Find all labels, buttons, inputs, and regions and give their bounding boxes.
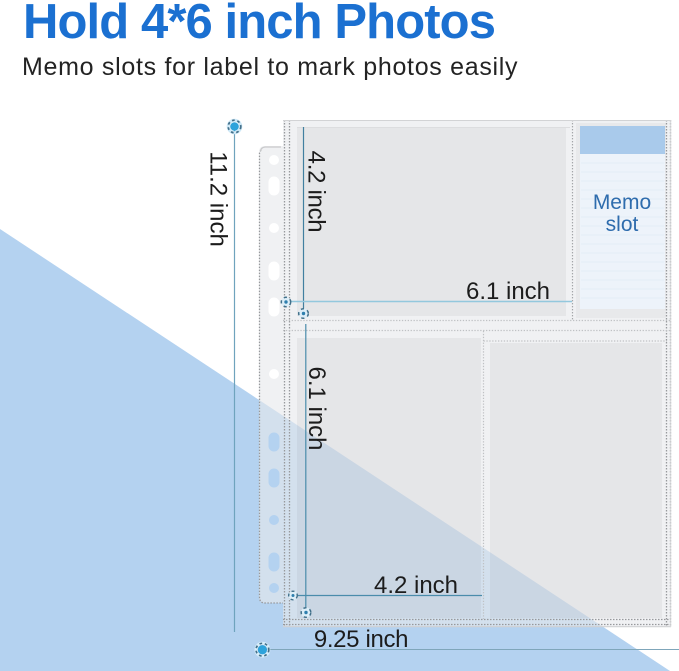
svg-text:6.1 inch: 6.1 inch [466, 278, 550, 305]
svg-text:Memo: Memo [593, 191, 651, 214]
svg-text:4.2 inch: 4.2 inch [303, 151, 330, 233]
svg-text:11.2 inch: 11.2 inch [205, 151, 232, 247]
svg-text:9.25 inch: 9.25 inch [314, 626, 408, 653]
svg-text:4.2 inch: 4.2 inch [374, 572, 458, 599]
svg-text:slot: slot [606, 213, 639, 236]
svg-text:6.1 inch: 6.1 inch [303, 366, 330, 450]
